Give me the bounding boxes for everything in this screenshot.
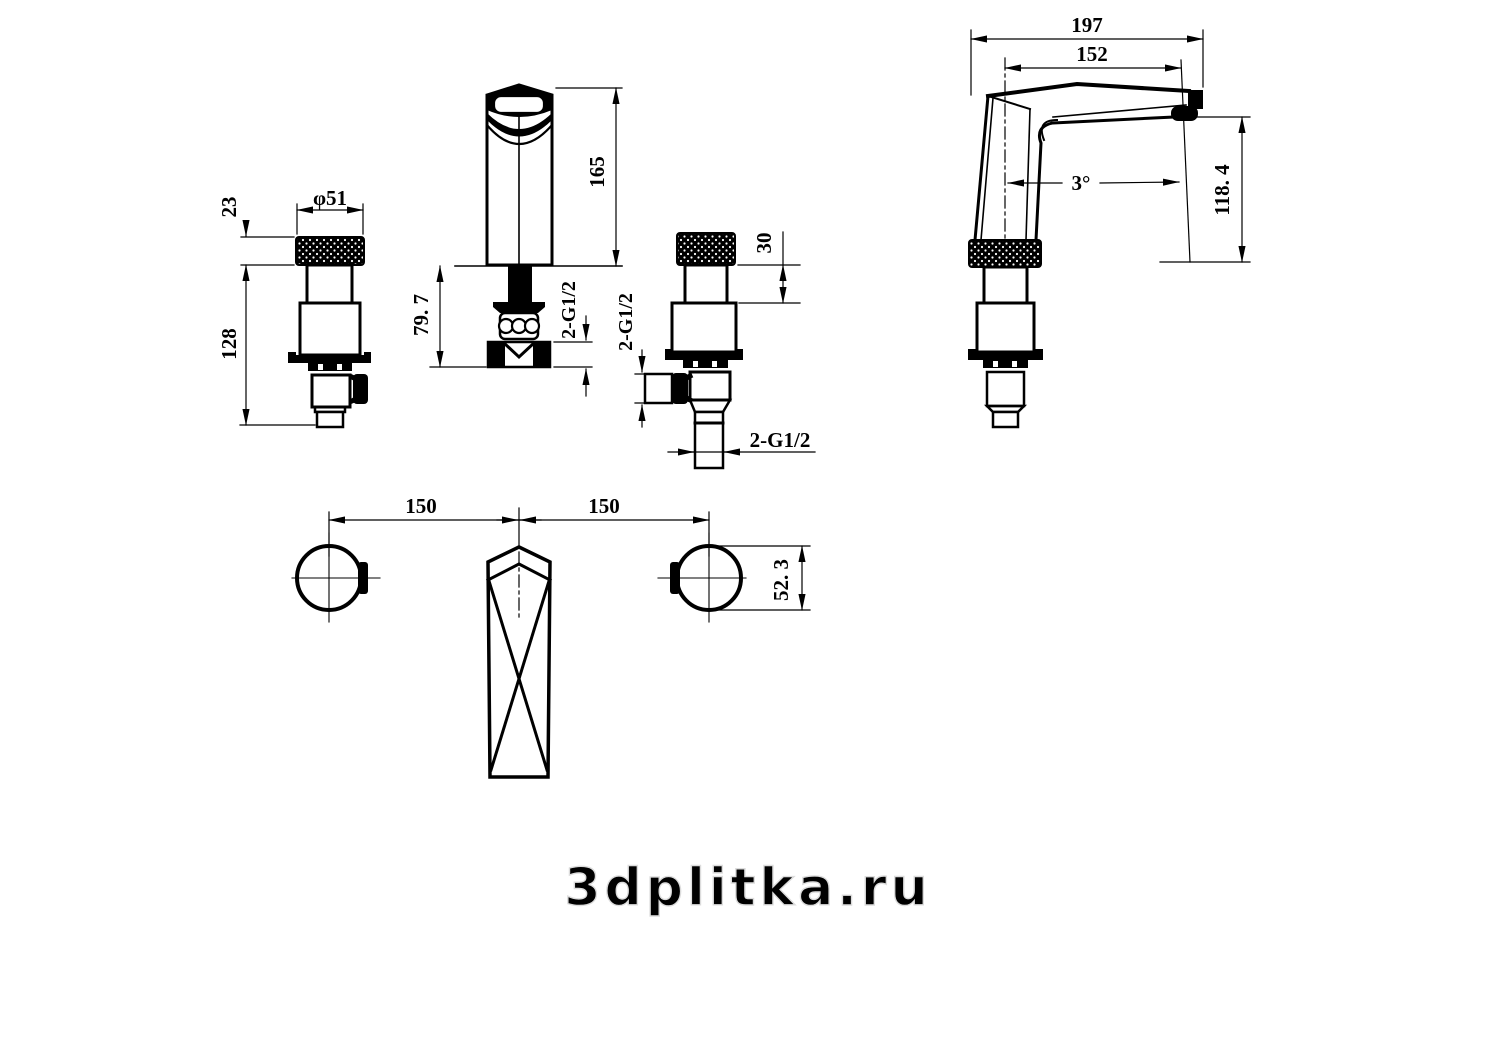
handle2-outlet-pipe xyxy=(645,374,672,403)
dim-under-deck: 79. 7 xyxy=(409,294,433,336)
spout-side-body xyxy=(977,303,1034,352)
dim-outlet-thread: 2-G1/2 xyxy=(615,293,637,351)
watermark-text: 3dplitka.ru xyxy=(564,858,931,918)
spout-side-neck xyxy=(984,267,1027,303)
spout-side-knurl xyxy=(969,240,1041,267)
handle2-knurl xyxy=(677,233,735,265)
dim-pitch-right: 150 xyxy=(588,494,620,518)
spout-side-valve-body xyxy=(987,372,1024,406)
spout-side-stub xyxy=(993,412,1018,427)
dim-knob-diameter: φ51 xyxy=(313,186,347,210)
spout-side-collar xyxy=(983,360,1028,368)
handle-valve-body xyxy=(312,375,350,407)
spout-front-top-window xyxy=(494,96,544,113)
handle2-body xyxy=(672,303,736,352)
spout-side-outlet-nub xyxy=(1171,106,1198,121)
handle-bottom-stub xyxy=(317,412,343,427)
dim-spout-angle: 3° xyxy=(1072,171,1091,195)
dim-spout-height: 165 xyxy=(585,156,609,188)
dim-outlet-height: 118. 4 xyxy=(1210,164,1234,216)
dim-neck-height: 30 xyxy=(752,233,776,254)
handle-neck xyxy=(307,265,352,303)
dim-bottom-thread: 2-G1/2 xyxy=(750,428,811,452)
handle2-neck xyxy=(685,265,727,303)
spout-flange xyxy=(493,302,545,313)
dim-knurl-height: 23 xyxy=(217,197,241,218)
dim-spout-thread: 2-G1/2 xyxy=(558,281,580,339)
handle-outlet-cap xyxy=(353,374,368,404)
handle2-outlet-cap xyxy=(672,373,688,404)
dim-overall-length: 197 xyxy=(1071,13,1103,37)
dim-spout-reach: 152 xyxy=(1076,42,1108,66)
handle-knurl xyxy=(296,237,364,265)
faucet-technical-drawing: 3dplitka.ru φ51 23 128 xyxy=(0,0,1497,1058)
handle2-collar xyxy=(683,360,728,368)
technical-drawing-page: 3dplitka.ru φ51 23 128 xyxy=(0,0,1497,1058)
dim-overall-height: 128 xyxy=(217,328,241,360)
dim-handle-diameter: 52. 3 xyxy=(769,559,793,601)
spout-stem xyxy=(508,266,532,302)
handle-body xyxy=(300,303,360,355)
handle2-bottom-stub xyxy=(695,412,723,468)
dim-pitch-left: 150 xyxy=(405,494,437,518)
handle-collar xyxy=(308,363,352,371)
handle2-valve-body xyxy=(690,372,730,400)
